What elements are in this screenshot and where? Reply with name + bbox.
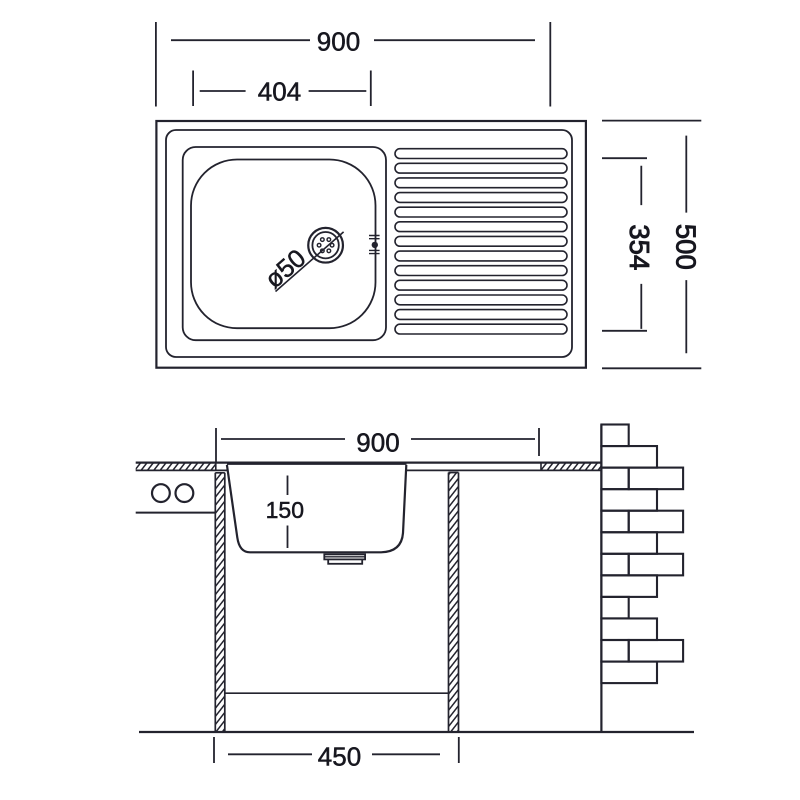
svg-text:450: 450 <box>318 742 361 772</box>
svg-text:150: 150 <box>266 497 304 523</box>
svg-text:900: 900 <box>356 428 399 458</box>
svg-text:354: 354 <box>624 224 655 270</box>
svg-text:404: 404 <box>258 77 301 107</box>
svg-text:500: 500 <box>671 224 702 270</box>
svg-text:900: 900 <box>317 26 360 56</box>
svg-text:ø50: ø50 <box>260 244 312 294</box>
